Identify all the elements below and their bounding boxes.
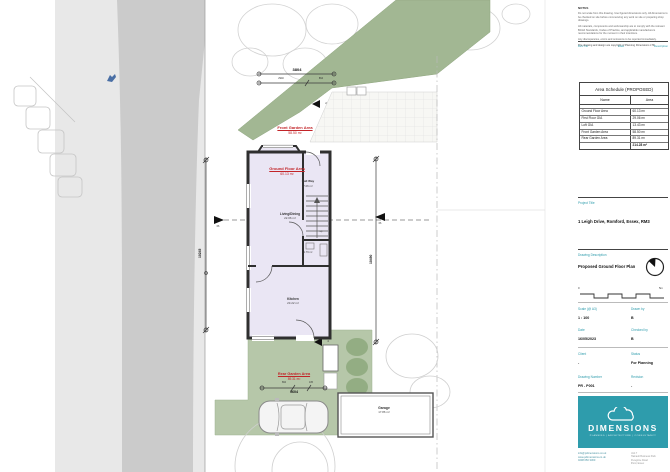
row-name: Loft GIA [580, 123, 631, 129]
front-garden-area: 58.50 m² [265, 131, 325, 135]
road [55, 0, 205, 472]
table-row: Loft GIA 13.43 m² [580, 123, 668, 130]
dim-right: 10490 [369, 255, 373, 264]
north-arrow-icon [647, 259, 664, 276]
total-area: 214.28 m² [631, 143, 668, 149]
row-area: 60.13 m² [631, 109, 668, 115]
drawn-by-value: B [631, 316, 634, 320]
address-info: Unit 7 Hainault Business Park Peregrine … [631, 452, 668, 465]
scale-label: Scale (@ A3) [578, 307, 597, 311]
revision-label: Revision [631, 375, 643, 379]
dim-top-sub-left: 2940 [268, 77, 294, 80]
scale-value: 1 : 100 [578, 316, 589, 320]
ground-floor-area: 60.13 m² [259, 172, 315, 176]
revision-value: - [631, 384, 632, 388]
drawing-description: Proposed Ground Floor Plan [578, 264, 644, 269]
living-area: 22.06 m² [268, 217, 312, 221]
address-line: Ilford, Essex [631, 462, 668, 465]
porch-step [347, 87, 356, 95]
rev-no-label: Rev: No [578, 44, 588, 48]
divider [578, 302, 668, 303]
rev-date-label: Date [618, 44, 624, 48]
row-name: First Floor GIA [580, 116, 631, 122]
drawn-by-label: Drawn by [631, 307, 644, 311]
drawing-number-label: Drawing Number [578, 375, 602, 379]
ground-floor-label: Ground Floor Area [259, 166, 315, 171]
dim-rear-sub-right: 105 [302, 381, 320, 384]
table-row: Rear Garden Area 89.31 m² [580, 136, 668, 143]
boundary-lines [437, 0, 545, 472]
porch-step [357, 87, 366, 95]
table-total-row: 214.28 m² [580, 143, 668, 149]
cloud-icon [606, 407, 640, 422]
garage-outline [338, 393, 433, 437]
client-label: Client [578, 352, 586, 356]
divider [578, 347, 668, 348]
row-area: 89.31 m² [631, 136, 668, 142]
section-marker-left [214, 216, 224, 224]
status-value: For Planning [631, 361, 653, 365]
table-row: Ground Floor Area 60.13 m² [580, 109, 668, 116]
window-rear [252, 335, 274, 341]
marker-section-left-label: 66 [213, 225, 223, 228]
front-garden-greenery [238, 0, 490, 142]
dim-top-main: 3804 [282, 67, 312, 72]
dim-rear-main: 9604 [279, 390, 309, 394]
checked-by-label: Checked by [631, 328, 648, 332]
marker-rear-label: 4 [324, 339, 332, 343]
drawing-description-label: Drawing Description [578, 253, 607, 257]
notes-paragraph: Do not scale from this drawing. Use figu… [578, 12, 668, 23]
hall-area: 7.06 m² [293, 185, 323, 189]
row-name: Front Garden Area [580, 130, 631, 136]
company-name: DIMENSIONS [588, 423, 658, 433]
stairs-up-label: up [316, 230, 326, 233]
scale-zero-label: 0 [578, 286, 580, 290]
kitchen-area: 23.22 m² [271, 302, 315, 306]
dim-left: 10245 [198, 249, 202, 258]
drawing-number-value: PR - P001 [578, 384, 595, 388]
row-area: 58.50 m² [631, 130, 668, 136]
row-name: Ground Floor Area [580, 109, 631, 115]
divider [578, 249, 668, 250]
table-title: Area Schedule (PROPOSED) [580, 83, 668, 96]
divider [578, 392, 668, 393]
garage-area: 17.86 m² [362, 411, 406, 415]
notes-heading: NOTES [578, 6, 668, 10]
date-value: 16/05/2023 [578, 337, 596, 341]
notes-paragraph: All materials, components and workmanshi… [578, 25, 668, 36]
car-topview [259, 398, 328, 436]
front-garden-label: Front Garden Area [265, 125, 325, 130]
row-area: 29.06 m² [631, 116, 668, 122]
site-plan-graphics [0, 0, 670, 472]
col-area: Area [631, 96, 668, 104]
col-name: Name [580, 96, 631, 104]
project-title: 1 Leigh Drive, Romford, Essex, RM3 [578, 219, 668, 224]
table-row: First Floor GIA 29.06 m² [580, 116, 668, 123]
table-row: Front Garden Area 58.50 m² [580, 130, 668, 137]
area-schedule-table: Area Schedule (PROPOSED) Name Area Groun… [579, 82, 669, 150]
row-area: 13.43 m² [631, 123, 668, 129]
status-label: Status [631, 352, 640, 356]
divider [578, 41, 668, 42]
scale-five-label: 5m [659, 286, 663, 290]
company-logo-block: DIMENSIONS PLANNING | ARCHITECTURE | CON… [578, 396, 668, 448]
company-tagline: PLANNING | ARCHITECTURE | CONSULTANCY [590, 435, 656, 437]
contact-phone: 0208 050 3300 [578, 459, 626, 463]
wc-area: 1.79 m² [296, 251, 320, 254]
divider [578, 197, 668, 198]
bush [346, 338, 368, 356]
total-name-empty [580, 143, 631, 149]
marker-front-label: 2 [322, 101, 330, 105]
bush [346, 358, 368, 376]
revision-header: Rev: No Date Description [578, 44, 668, 48]
row-name: Rear Garden Area [580, 136, 631, 142]
project-title-label: Project Title [578, 201, 595, 205]
client-value: - [578, 361, 579, 365]
marker-section-right-label: 66 [375, 222, 385, 225]
windows-left [245, 184, 251, 312]
table-header: Name Area [580, 96, 668, 105]
scale-bar [580, 294, 664, 298]
dim-rear-sub-left: 864 [274, 381, 294, 384]
date-label: Date [578, 328, 585, 332]
door-opening-rear [296, 335, 314, 341]
drawing-sheet: Front Garden Area 58.50 m² Ground Floor … [0, 0, 670, 472]
dim-top-sub-right: 864 [310, 77, 332, 80]
checked-by-value: B [631, 337, 634, 341]
road-surface [117, 0, 205, 472]
rev-description-label: Description [654, 44, 668, 48]
contact-info: info@pdimensions.co.uk www.pdimensions.c… [578, 452, 626, 463]
shed [323, 345, 338, 371]
